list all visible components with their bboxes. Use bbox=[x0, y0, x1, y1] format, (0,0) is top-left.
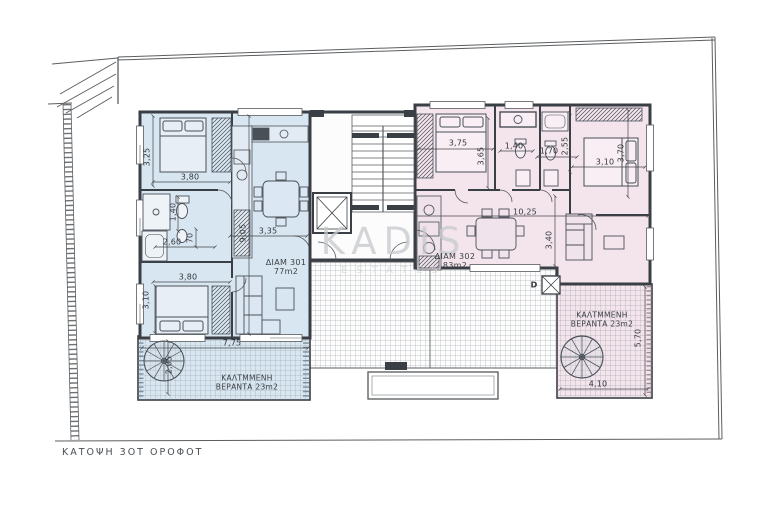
wardrobe bbox=[576, 108, 642, 121]
bed bbox=[160, 118, 206, 172]
elevator bbox=[313, 193, 351, 233]
dimension-label: 2,05 bbox=[165, 356, 174, 375]
dimension-label: 3,65 bbox=[477, 147, 486, 166]
dimension-label: 10,25 bbox=[513, 208, 537, 217]
dimension-label: 7,75 bbox=[223, 339, 242, 348]
dimension-label: 5,70 bbox=[634, 329, 643, 348]
dimension-label: 3,10 bbox=[596, 158, 615, 167]
staircase bbox=[352, 115, 414, 212]
apartment-301-plan bbox=[137, 109, 311, 342]
bed bbox=[156, 286, 208, 334]
veranda-left-line2: ΒΕΡΑΝΤΑ 23m2 bbox=[216, 383, 278, 392]
wardrobe bbox=[212, 118, 231, 172]
dimension-label: 2,55 bbox=[561, 137, 570, 156]
apartment-301-name: ΔΙΑΜ 301 bbox=[266, 258, 306, 267]
dimension-label: 9,05 bbox=[239, 224, 248, 243]
dimension-label: 1,40 bbox=[169, 203, 178, 222]
wardrobe bbox=[417, 114, 433, 178]
dimension-label: 2,60 bbox=[163, 238, 182, 247]
dimension-label: 3,80 bbox=[179, 273, 198, 282]
dimension-label: 3,70 bbox=[617, 144, 626, 163]
apartment-301-area: 77m2 bbox=[266, 267, 306, 276]
dimension-label: 4,10 bbox=[589, 380, 608, 389]
drawing-title: ΚΑΤΟΨΗ 3ΟΤ ΟΡΟΦΟΤ bbox=[62, 447, 203, 458]
dimension-label: 70 bbox=[186, 233, 195, 244]
veranda-right-line2: ΒΕΡΑΝΤΑ 23m2 bbox=[571, 320, 633, 329]
apartment-302-name: ΔΙΑΜ 302 bbox=[435, 252, 475, 261]
wardrobe bbox=[212, 286, 230, 334]
apartment-302-label: ΔΙΑΜ 302 83m2 bbox=[435, 252, 475, 270]
dimension-label: 1,40 bbox=[505, 142, 524, 151]
floor-plan-page: KADIS ESTATES ΔΙΑΜ 301 77m2 ΔΙΑΜ 302 83m… bbox=[0, 0, 768, 512]
dimension-label: 1,70 bbox=[540, 147, 559, 156]
dimension-label: 3,40 bbox=[545, 231, 554, 250]
dimension-label: 3,25 bbox=[143, 148, 152, 167]
dimension-label: 3,35 bbox=[259, 227, 278, 236]
stair-core bbox=[310, 110, 415, 260]
dimension-label: 3,10 bbox=[142, 291, 151, 310]
dimension-label: 3,80 bbox=[181, 173, 200, 182]
veranda-left-label: ΚΑΛΤΜΜΕΝΗ ΒΕΡΑΝΤΑ 23m2 bbox=[216, 374, 278, 391]
veranda-right-label: ΚΑΛΤΜΜΕΝΗ ΒΕΡΑΝΤΑ 23m2 bbox=[571, 311, 633, 328]
dimension-label: 3,75 bbox=[449, 139, 468, 148]
duct-square bbox=[542, 276, 560, 294]
apartment-301-label: ΔΙΑΜ 301 77m2 bbox=[266, 258, 306, 276]
spiral-staircase-right bbox=[561, 336, 603, 378]
duct-label: D bbox=[531, 281, 538, 290]
apartment-302-area: 83m2 bbox=[435, 261, 475, 270]
floor-plan-drawing bbox=[0, 0, 768, 512]
